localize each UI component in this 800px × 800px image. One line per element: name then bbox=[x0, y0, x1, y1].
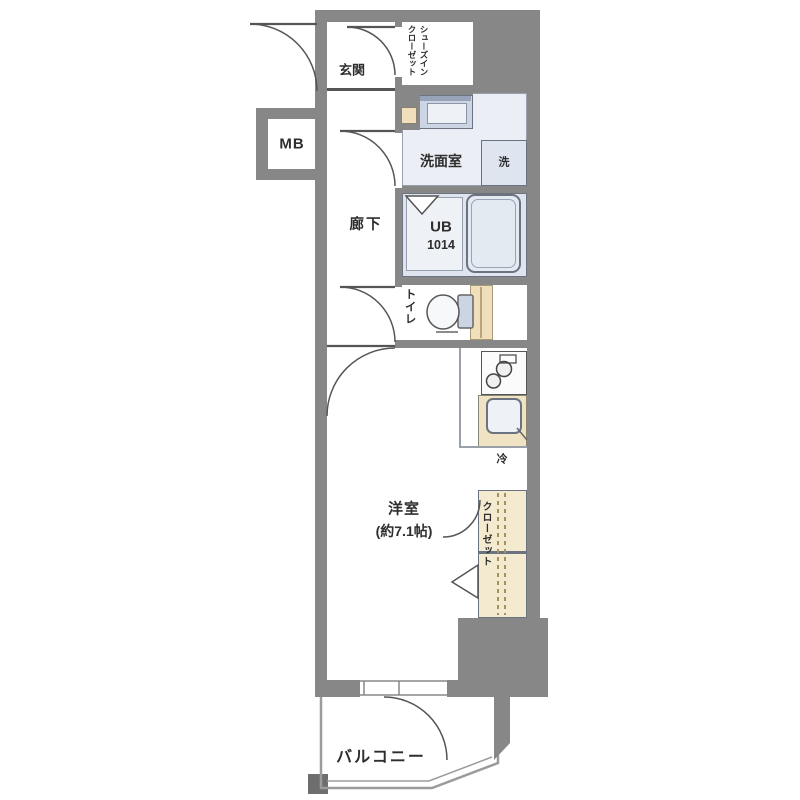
genkan-step-line bbox=[327, 88, 395, 91]
toilet-counter-line bbox=[480, 287, 482, 338]
door-swing-icon bbox=[327, 348, 395, 416]
label-meter-box: MB bbox=[279, 137, 304, 152]
label-genkan: 玄関 bbox=[339, 64, 365, 77]
wall bbox=[395, 22, 402, 27]
closet-hanger-line bbox=[497, 493, 499, 615]
sink-icon bbox=[486, 398, 522, 434]
door-swing-icon bbox=[340, 287, 395, 342]
wall bbox=[327, 10, 473, 22]
balcony-opening-line bbox=[360, 681, 447, 695]
label-toilet: トイレ bbox=[403, 288, 416, 342]
bathtub-inner bbox=[471, 199, 516, 268]
label-corridor: 廊下 bbox=[350, 218, 383, 233]
label-unit-bath: UB bbox=[430, 220, 452, 235]
kitchen-boundary-line bbox=[459, 348, 461, 447]
door-swing-icon bbox=[340, 131, 395, 186]
door-swing-icon bbox=[250, 24, 317, 91]
door-swing-icon bbox=[443, 500, 480, 537]
label-room: 洋室 bbox=[388, 502, 420, 517]
label-closet: クローゼット bbox=[480, 501, 491, 609]
floor-plan: 玄関 シューズイン クローゼット MB 洗面室 洗 廊下 UB 1014 トイレ… bbox=[0, 0, 800, 800]
label-room-size: (約7.1帖) bbox=[376, 524, 433, 538]
label-unit-bath-size: 1014 bbox=[427, 239, 455, 252]
wall bbox=[473, 10, 540, 93]
label-fridge: 冷 bbox=[497, 455, 508, 466]
wall bbox=[402, 186, 527, 193]
balcony-side-wall bbox=[494, 697, 510, 760]
balcony-outline bbox=[321, 697, 498, 788]
washbasin-backsplash bbox=[420, 96, 471, 101]
closet-hanger-line bbox=[504, 493, 506, 615]
fridge-space-line bbox=[459, 446, 527, 448]
folding-door-icon bbox=[452, 565, 478, 598]
pipe-space bbox=[401, 107, 417, 124]
label-balcony: バルコニー bbox=[336, 750, 426, 766]
label-washroom: 洗面室 bbox=[420, 154, 462, 168]
label-shoe-closet-line2: クローゼット bbox=[406, 25, 418, 85]
wall bbox=[395, 188, 402, 287]
label-washer: 洗 bbox=[499, 158, 510, 169]
wall bbox=[395, 340, 540, 348]
label-shoe-closet-line1: シューズイン bbox=[418, 25, 430, 85]
wall bbox=[447, 680, 548, 697]
label-shoe-closet: シューズイン クローゼット bbox=[406, 25, 430, 85]
wall bbox=[527, 93, 540, 618]
balcony-pillar bbox=[308, 774, 328, 794]
wall bbox=[402, 277, 527, 285]
toilet-icon bbox=[427, 295, 459, 329]
wall bbox=[395, 85, 473, 95]
washbasin-bowl bbox=[427, 103, 467, 124]
stove-icon bbox=[481, 351, 527, 395]
wall bbox=[315, 680, 360, 697]
